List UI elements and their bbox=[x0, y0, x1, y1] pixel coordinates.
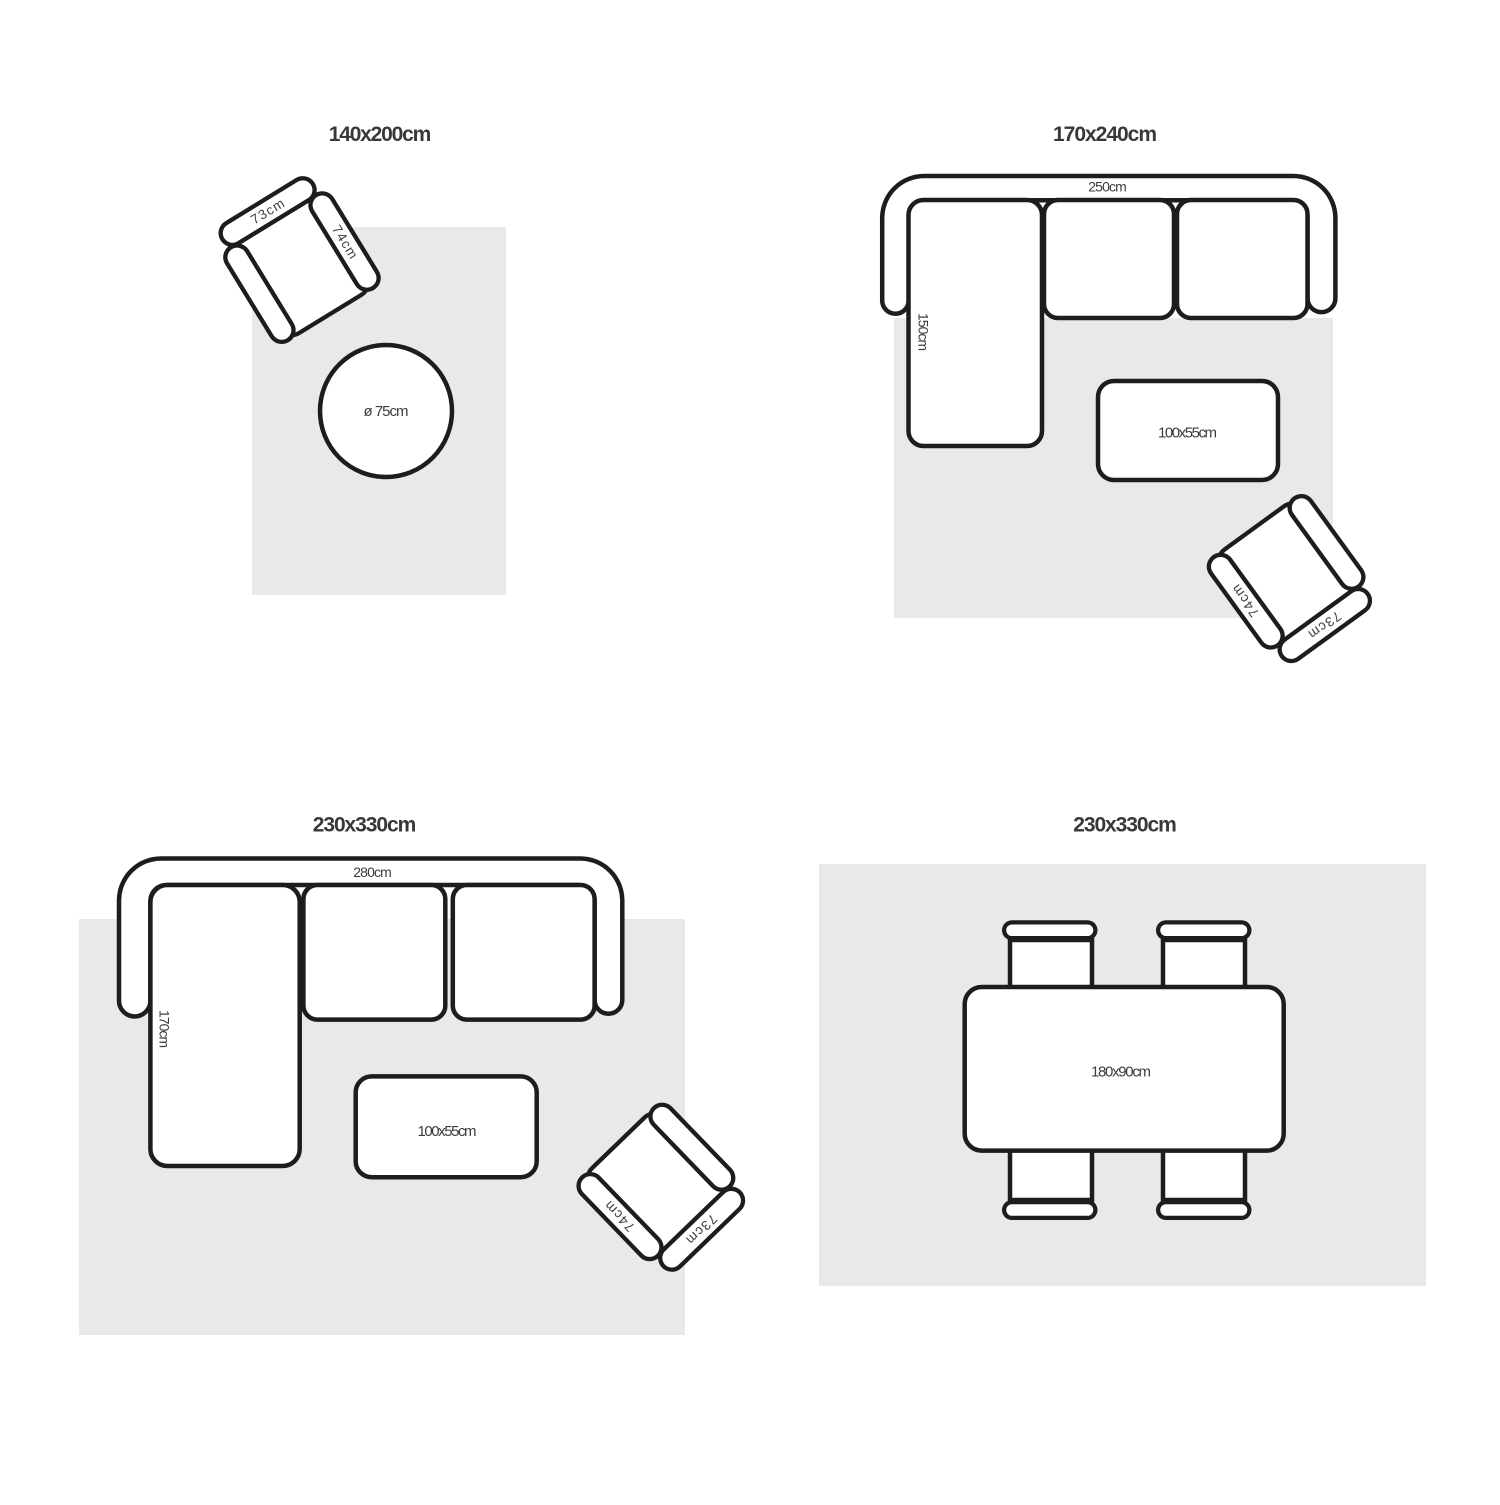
svg-text:230x330cm: 230x330cm bbox=[313, 814, 417, 837]
svg-text:170cm: 170cm bbox=[157, 1010, 173, 1048]
svg-text:170x240cm: 170x240cm bbox=[1053, 123, 1157, 146]
svg-text:140x200cm: 140x200cm bbox=[329, 123, 432, 146]
svg-text:ø 75cm: ø 75cm bbox=[364, 403, 409, 420]
svg-text:180x90cm: 180x90cm bbox=[1091, 1064, 1151, 1081]
svg-text:100x55cm: 100x55cm bbox=[418, 1123, 477, 1140]
svg-text:100x55cm: 100x55cm bbox=[1158, 425, 1217, 442]
svg-text:280cm: 280cm bbox=[353, 864, 392, 880]
svg-text:250cm: 250cm bbox=[1088, 179, 1127, 195]
svg-text:150cm: 150cm bbox=[916, 313, 932, 351]
svg-text:230x330cm: 230x330cm bbox=[1073, 814, 1177, 837]
